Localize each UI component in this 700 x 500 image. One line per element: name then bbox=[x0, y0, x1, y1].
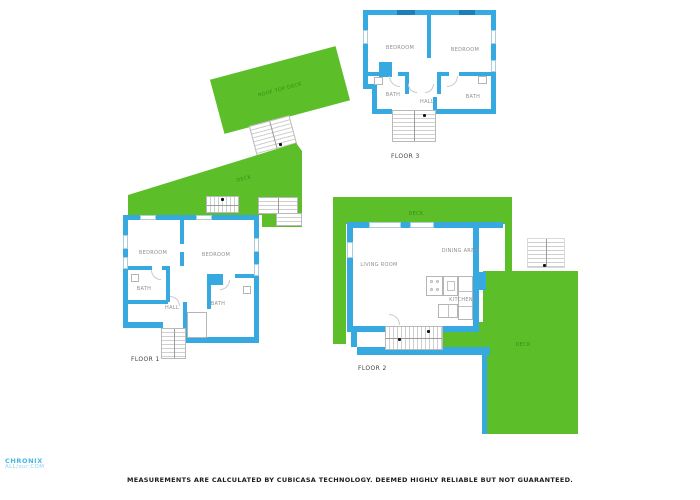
window bbox=[410, 222, 434, 228]
wall-segment bbox=[363, 10, 368, 89]
floor2-stairs bbox=[385, 326, 443, 350]
room-label-bedroom: BEDROOM bbox=[128, 250, 178, 256]
wall-segment bbox=[128, 300, 168, 304]
wall-segment bbox=[347, 222, 353, 332]
wall-segment bbox=[180, 252, 184, 266]
wall-segment bbox=[436, 109, 496, 114]
room-label-bedroom: BEDROOM bbox=[191, 252, 241, 258]
window bbox=[347, 242, 353, 258]
wall-segment bbox=[473, 222, 479, 272]
room-label-kitchen: KITCHEN bbox=[441, 297, 481, 303]
watermark-logo: CHRONIX ALL/our.COM bbox=[5, 458, 44, 470]
wall-segment bbox=[405, 72, 409, 94]
stair-direction-dot bbox=[423, 114, 426, 117]
deck-right-label: DECK bbox=[505, 342, 541, 348]
wall-segment bbox=[254, 215, 259, 343]
window-dark bbox=[459, 10, 475, 15]
deck-top-label: DECK bbox=[402, 211, 430, 217]
window bbox=[140, 215, 156, 220]
window bbox=[491, 60, 496, 72]
window-dark bbox=[397, 10, 415, 15]
room-label-bath: BATH bbox=[206, 301, 230, 307]
window bbox=[254, 264, 259, 276]
outdoor-stairs bbox=[527, 238, 565, 268]
disclaimer-text: MEASUREMENTS ARE CALCULATED BY CUBICASA … bbox=[0, 476, 700, 484]
floor3-title: FLOOR 3 bbox=[391, 153, 420, 160]
stair-direction-dot bbox=[543, 264, 546, 267]
room-label-bedroom: BEDROOM bbox=[440, 47, 490, 53]
wall-notch bbox=[473, 272, 486, 290]
floor2-deck-connector bbox=[505, 197, 512, 272]
stair-direction-dot bbox=[221, 198, 224, 201]
wall-segment bbox=[128, 266, 152, 270]
wall-segment bbox=[437, 72, 441, 94]
stair-direction-dot bbox=[279, 143, 282, 146]
kitchen-sink bbox=[443, 276, 458, 296]
room-label-hall: HALL bbox=[160, 305, 184, 311]
wall-segment bbox=[482, 353, 487, 434]
stair-direction-dot bbox=[427, 330, 430, 333]
bath-sink bbox=[243, 286, 251, 294]
closet bbox=[187, 312, 207, 338]
room-label-dining-area: DINING AREA bbox=[433, 248, 487, 254]
bath-sink bbox=[478, 76, 487, 84]
floor1-title: FLOOR 1 bbox=[131, 356, 160, 363]
floor1-interior bbox=[128, 220, 254, 323]
window bbox=[491, 30, 496, 44]
floor3-stairs bbox=[392, 110, 436, 142]
wall-segment bbox=[427, 15, 431, 58]
window bbox=[254, 238, 259, 252]
room-label-living-room: LIVING ROOM bbox=[349, 262, 409, 268]
wall-segment bbox=[123, 215, 128, 327]
room-label-bath: BATH bbox=[461, 94, 485, 100]
wall-segment bbox=[368, 72, 390, 76]
floor2-title: FLOOR 2 bbox=[358, 365, 387, 372]
window bbox=[363, 30, 368, 44]
room-label-bath: BATH bbox=[381, 92, 405, 98]
entry-porch-landing bbox=[276, 213, 302, 226]
wall-segment bbox=[351, 332, 357, 347]
window bbox=[123, 235, 128, 249]
bath-sink bbox=[131, 274, 139, 282]
floor1-stairs bbox=[161, 328, 186, 359]
kitchen-counter-bottom bbox=[438, 304, 458, 318]
bath-sink bbox=[374, 77, 383, 85]
floor2-deck-right bbox=[483, 271, 578, 434]
entry-porch-stairs bbox=[258, 197, 298, 214]
wall-segment bbox=[180, 220, 184, 244]
room-label-hall: HALL bbox=[415, 99, 439, 105]
stove bbox=[426, 276, 443, 296]
watermark-logo-line2: ALL/our.COM bbox=[5, 464, 44, 470]
room-label-bath: BATH bbox=[132, 286, 156, 292]
floor2-deck-left bbox=[333, 197, 346, 344]
room-label-bedroom: BEDROOM bbox=[375, 45, 425, 51]
floorplan-canvas: ROOF TOP DECK DECK BEDROOM BEDROOM BATH … bbox=[0, 0, 700, 500]
stair-direction-dot bbox=[398, 338, 401, 341]
wall-segment bbox=[123, 322, 163, 328]
wall-segment bbox=[372, 109, 392, 114]
wall-segment bbox=[443, 326, 479, 332]
window bbox=[196, 215, 212, 220]
window bbox=[369, 222, 401, 228]
window bbox=[123, 257, 128, 269]
rooftop-deck-label: ROOF TOP DECK bbox=[257, 81, 302, 98]
